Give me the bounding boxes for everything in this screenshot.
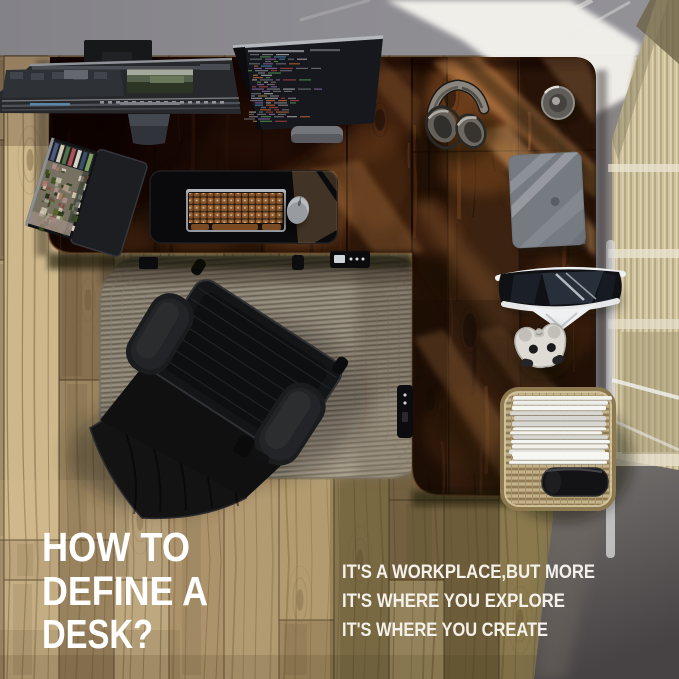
svg-text:HOW TO: HOW TO bbox=[42, 524, 190, 570]
svg-text:IT'S WHERE YOU EXPLORE: IT'S WHERE YOU EXPLORE bbox=[342, 590, 565, 612]
svg-text:DESK?: DESK? bbox=[42, 611, 153, 657]
svg-text:IT'S A WORKPLACE,BUT MORE: IT'S A WORKPLACE,BUT MORE bbox=[342, 561, 595, 583]
svg-text:DEFINE A: DEFINE A bbox=[42, 568, 208, 614]
svg-text:IT'S WHERE YOU CREATE: IT'S WHERE YOU CREATE bbox=[342, 619, 548, 641]
